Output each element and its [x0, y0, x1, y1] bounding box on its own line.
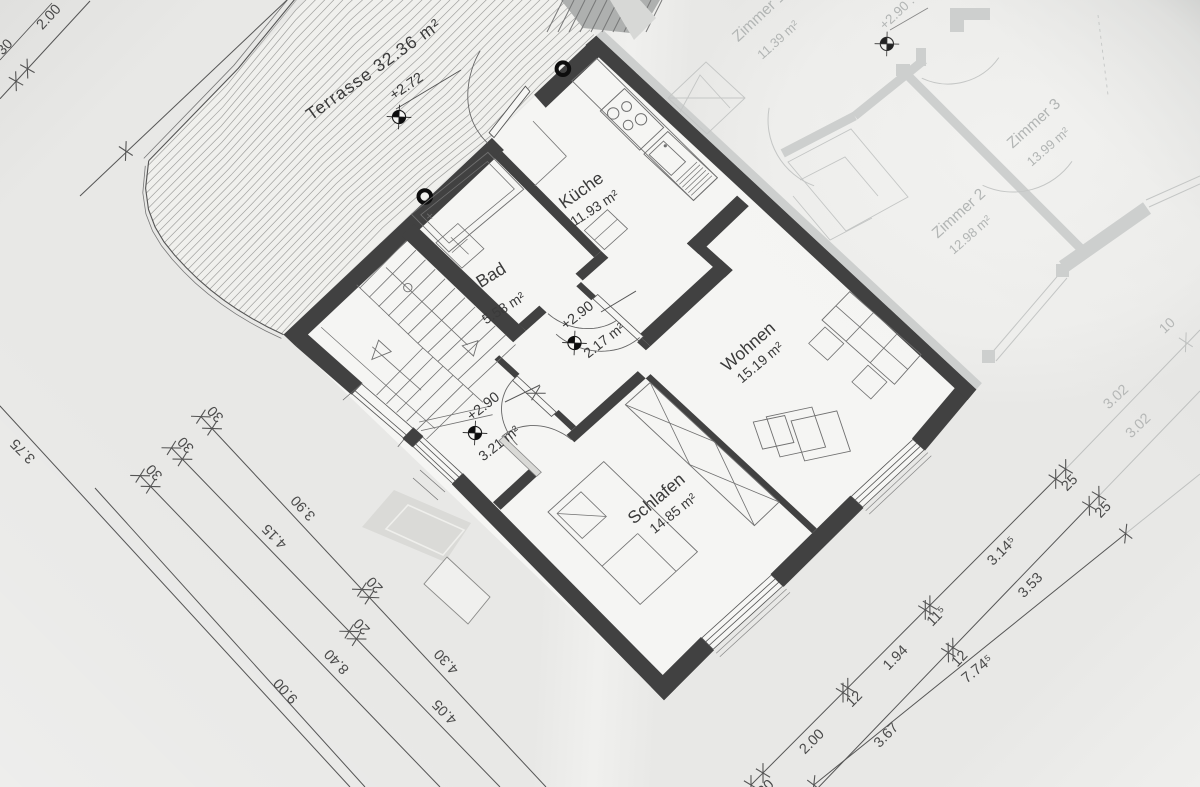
- svg-text:4.15: 4.15: [259, 520, 290, 551]
- svg-text:9.00: 9.00: [271, 675, 302, 707]
- svg-text:3.14⁵: 3.14⁵: [984, 534, 1019, 570]
- svg-text:4.05: 4.05: [429, 696, 460, 727]
- svg-text:12: 12: [843, 688, 866, 711]
- svg-text:25: 25: [1059, 472, 1082, 495]
- svg-text:25: 25: [1092, 499, 1115, 522]
- svg-text:4.30: 4.30: [431, 646, 462, 678]
- svg-text:2.00: 2.00: [797, 726, 828, 757]
- svg-text:20: 20: [351, 615, 374, 638]
- svg-text:1.94: 1.94: [880, 642, 911, 673]
- svg-text:3.90: 3.90: [288, 492, 319, 524]
- svg-text:3.75: 3.75: [8, 435, 39, 466]
- svg-text:3.53: 3.53: [1015, 570, 1046, 601]
- svg-text:20: 20: [364, 573, 387, 596]
- svg-text:8.40: 8.40: [322, 646, 353, 677]
- svg-text:3.02: 3.02: [1123, 411, 1154, 442]
- svg-text:30: 30: [143, 461, 166, 484]
- svg-text:30: 30: [175, 433, 198, 456]
- svg-text:30: 30: [0, 35, 16, 57]
- svg-text:30: 30: [205, 402, 228, 425]
